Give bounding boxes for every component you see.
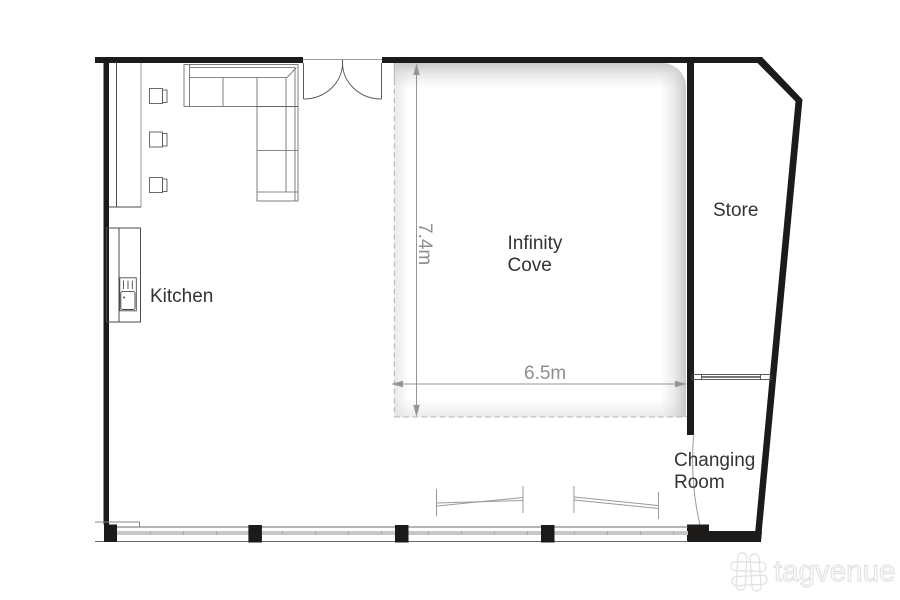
- svg-text:Infinity: Infinity: [508, 233, 563, 254]
- svg-text:Cove: Cove: [508, 255, 552, 276]
- svg-text:Kitchen: Kitchen: [150, 286, 213, 307]
- svg-text:tagvenue: tagvenue: [774, 555, 895, 588]
- svg-text:6.5m: 6.5m: [524, 363, 566, 384]
- svg-text:Store: Store: [713, 200, 758, 221]
- svg-text:Room: Room: [674, 472, 725, 493]
- svg-text:7.4m: 7.4m: [414, 223, 435, 265]
- svg-text:Changing: Changing: [674, 450, 755, 471]
